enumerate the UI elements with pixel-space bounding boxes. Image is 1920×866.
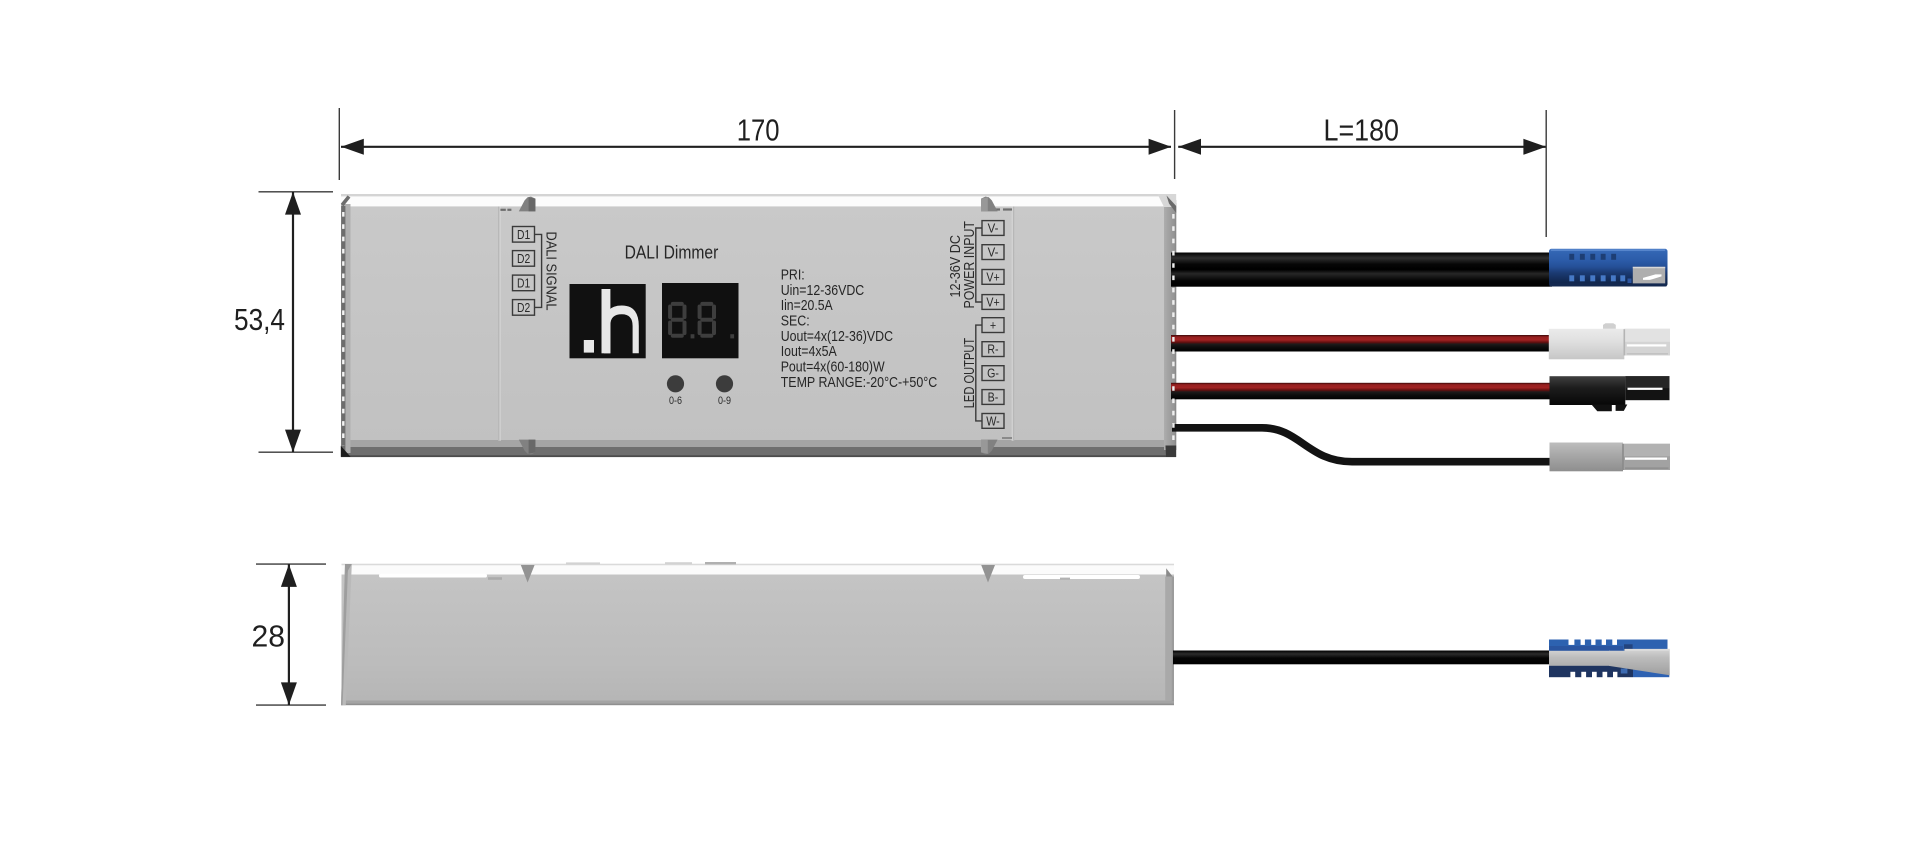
svg-text:V+: V+ — [986, 295, 999, 310]
svg-text:170: 170 — [737, 114, 780, 148]
svg-text:LED OUTPUT: LED OUTPUT — [962, 338, 978, 409]
svg-text:DALI SIGNAL: DALI SIGNAL — [543, 232, 560, 311]
svg-text:POWER INPUT: POWER INPUT — [962, 221, 978, 309]
svg-text:0-6: 0-6 — [669, 395, 682, 407]
svg-text:B-: B- — [988, 390, 999, 405]
svg-text:V+: V+ — [986, 270, 999, 285]
svg-text:0-9: 0-9 — [718, 395, 731, 407]
svg-text:D1: D1 — [517, 228, 530, 242]
svg-text:53,4: 53,4 — [234, 303, 285, 337]
svg-text:G-: G- — [987, 366, 999, 381]
svg-text:V-: V- — [988, 245, 999, 260]
svg-text:DALI Dimmer: DALI Dimmer — [625, 242, 719, 263]
svg-text:D2: D2 — [517, 301, 530, 315]
svg-text:+: + — [990, 318, 996, 333]
svg-text:V-: V- — [988, 221, 999, 236]
svg-text:R-: R- — [987, 342, 998, 357]
svg-text:D1: D1 — [517, 276, 530, 290]
svg-text:TEMP RANGE:-20°C-+50°C: TEMP RANGE:-20°C-+50°C — [781, 374, 938, 391]
svg-text:W-: W- — [986, 414, 1000, 429]
svg-text:L=180: L=180 — [1324, 114, 1400, 148]
svg-text:D2: D2 — [517, 252, 530, 266]
svg-text:28: 28 — [252, 620, 286, 654]
